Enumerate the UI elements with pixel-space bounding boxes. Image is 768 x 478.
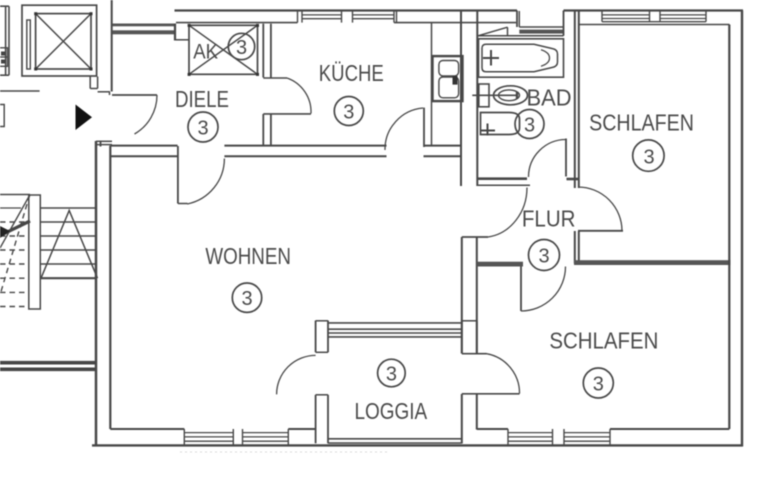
svg-text:3: 3	[236, 37, 247, 59]
svg-text:FLUR: FLUR	[522, 205, 576, 231]
svg-text:3: 3	[524, 115, 535, 137]
svg-text:SCHLAFEN: SCHLAFEN	[549, 327, 658, 353]
svg-text:LOGGIA: LOGGIA	[355, 398, 428, 424]
svg-text:3: 3	[241, 288, 252, 310]
svg-text:KÜCHE: KÜCHE	[319, 60, 384, 86]
svg-text:3: 3	[643, 147, 654, 169]
svg-text:3: 3	[343, 102, 354, 124]
svg-text:3: 3	[538, 246, 549, 268]
svg-text:3: 3	[386, 364, 397, 386]
svg-text:3: 3	[593, 374, 604, 396]
svg-text:SCHLAFEN: SCHLAFEN	[589, 109, 694, 135]
svg-text:3: 3	[197, 118, 208, 140]
svg-text:DIELE: DIELE	[175, 86, 229, 112]
svg-text:BAD: BAD	[527, 84, 572, 110]
svg-text:AK: AK	[193, 41, 218, 64]
svg-text:WOHNEN: WOHNEN	[205, 243, 291, 269]
